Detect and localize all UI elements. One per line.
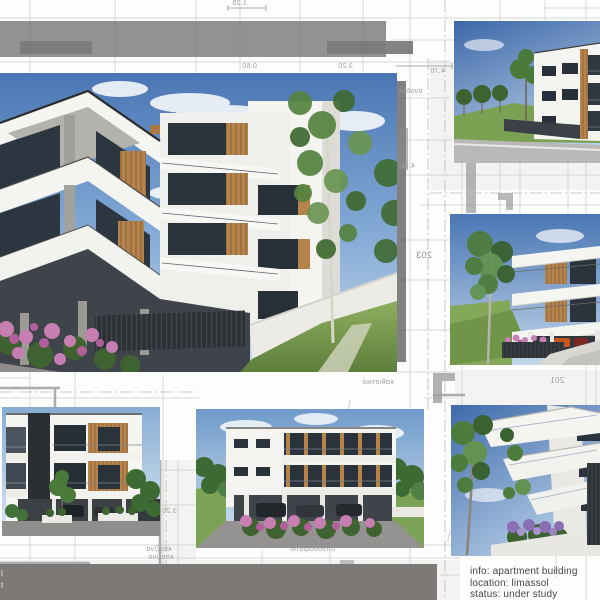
plan-dim-320b: 3.20 bbox=[162, 508, 177, 515]
plan-label-kitchen-b: κουζίνα bbox=[148, 554, 173, 561]
plan-dim-060: 0.60 bbox=[242, 63, 257, 70]
render-bottom-right bbox=[451, 405, 600, 556]
render-top-right bbox=[454, 21, 600, 163]
plan-room-201: 201 bbox=[550, 376, 564, 385]
render-middle-right bbox=[450, 214, 600, 365]
render-bottom-right-image bbox=[451, 405, 600, 556]
plan-label-living: καθιστικό bbox=[362, 379, 394, 386]
plan-room-203: 203 bbox=[416, 250, 432, 260]
plan-dim-320: 3.20 bbox=[338, 63, 353, 70]
plan-label-stairs: ανοδος bbox=[398, 88, 422, 95]
location-line: location: limassol bbox=[470, 578, 578, 590]
car bbox=[296, 505, 324, 517]
plan-dim-125: 1.25 bbox=[232, 0, 247, 7]
status-line: status: under study bbox=[470, 589, 578, 600]
cloud bbox=[464, 39, 504, 51]
render-bottom-left bbox=[2, 407, 160, 536]
building bbox=[6, 413, 142, 521]
fence bbox=[587, 463, 600, 545]
footer-gray-bar bbox=[0, 564, 437, 600]
render-bottom-left-image bbox=[2, 407, 160, 536]
footer-text-fragment-2: t bbox=[1, 582, 3, 590]
plan-dim-480: 4.80 bbox=[400, 163, 415, 170]
render-bottom-middle-image bbox=[196, 409, 424, 548]
plan-dim-470: 4.70 bbox=[430, 68, 445, 75]
plan-label-kitchen-a: κουζίνα bbox=[146, 546, 171, 553]
presentation-board: 1.25 0.60 3.20 4.70 ανοδος 4.80 203 καθι… bbox=[0, 0, 600, 600]
render-top-right-image bbox=[454, 21, 600, 163]
project-info: info: apartment building location: limas… bbox=[470, 566, 578, 600]
car bbox=[336, 504, 362, 516]
parking bbox=[234, 495, 392, 521]
render-main-image bbox=[0, 73, 397, 372]
render-bottom-middle bbox=[196, 409, 424, 548]
info-line: info: apartment building bbox=[470, 566, 578, 578]
cloud bbox=[536, 229, 584, 243]
render-main-exterior bbox=[0, 73, 397, 372]
car bbox=[256, 503, 286, 517]
top-gray-bar bbox=[0, 21, 386, 57]
render-middle-right-image bbox=[450, 214, 600, 365]
footer-text-fragment-1: l bbox=[1, 570, 3, 578]
building bbox=[226, 427, 424, 521]
